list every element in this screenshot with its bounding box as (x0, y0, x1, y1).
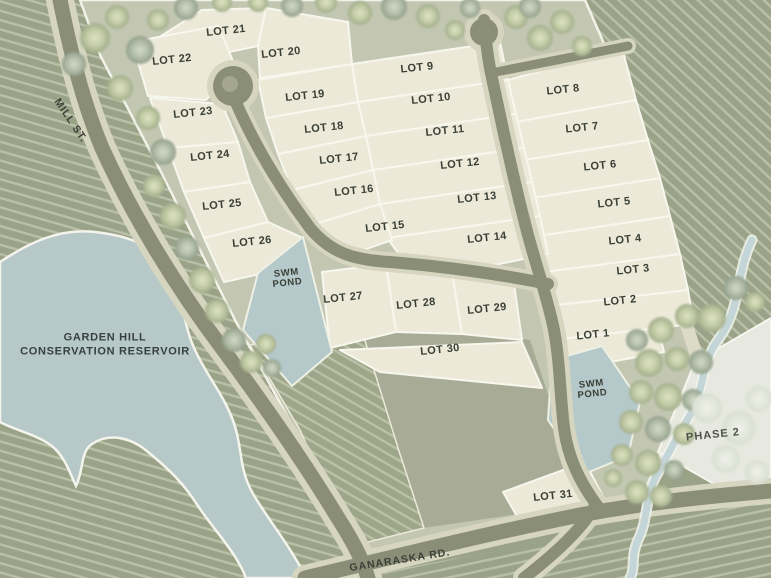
reservoir-label: GARDEN HILL CONSERVATION RESERVOIR (20, 331, 190, 360)
reservoir-label-line2: CONSERVATION RESERVOIR (20, 346, 190, 358)
site-plan-graphic (0, 0, 771, 578)
site-plan-map: LOT 1 LOT 2 LOT 3 LOT 4 LOT 5 LOT 6 LOT … (0, 0, 771, 578)
swm-pond-west-label: SWM POND (271, 267, 303, 291)
swm-pond-east-label: SWM POND (576, 378, 608, 402)
road-end-bulb (470, 18, 498, 46)
cul-de-sac-island (222, 76, 238, 92)
reservoir-label-line1: GARDEN HILL (64, 332, 147, 344)
